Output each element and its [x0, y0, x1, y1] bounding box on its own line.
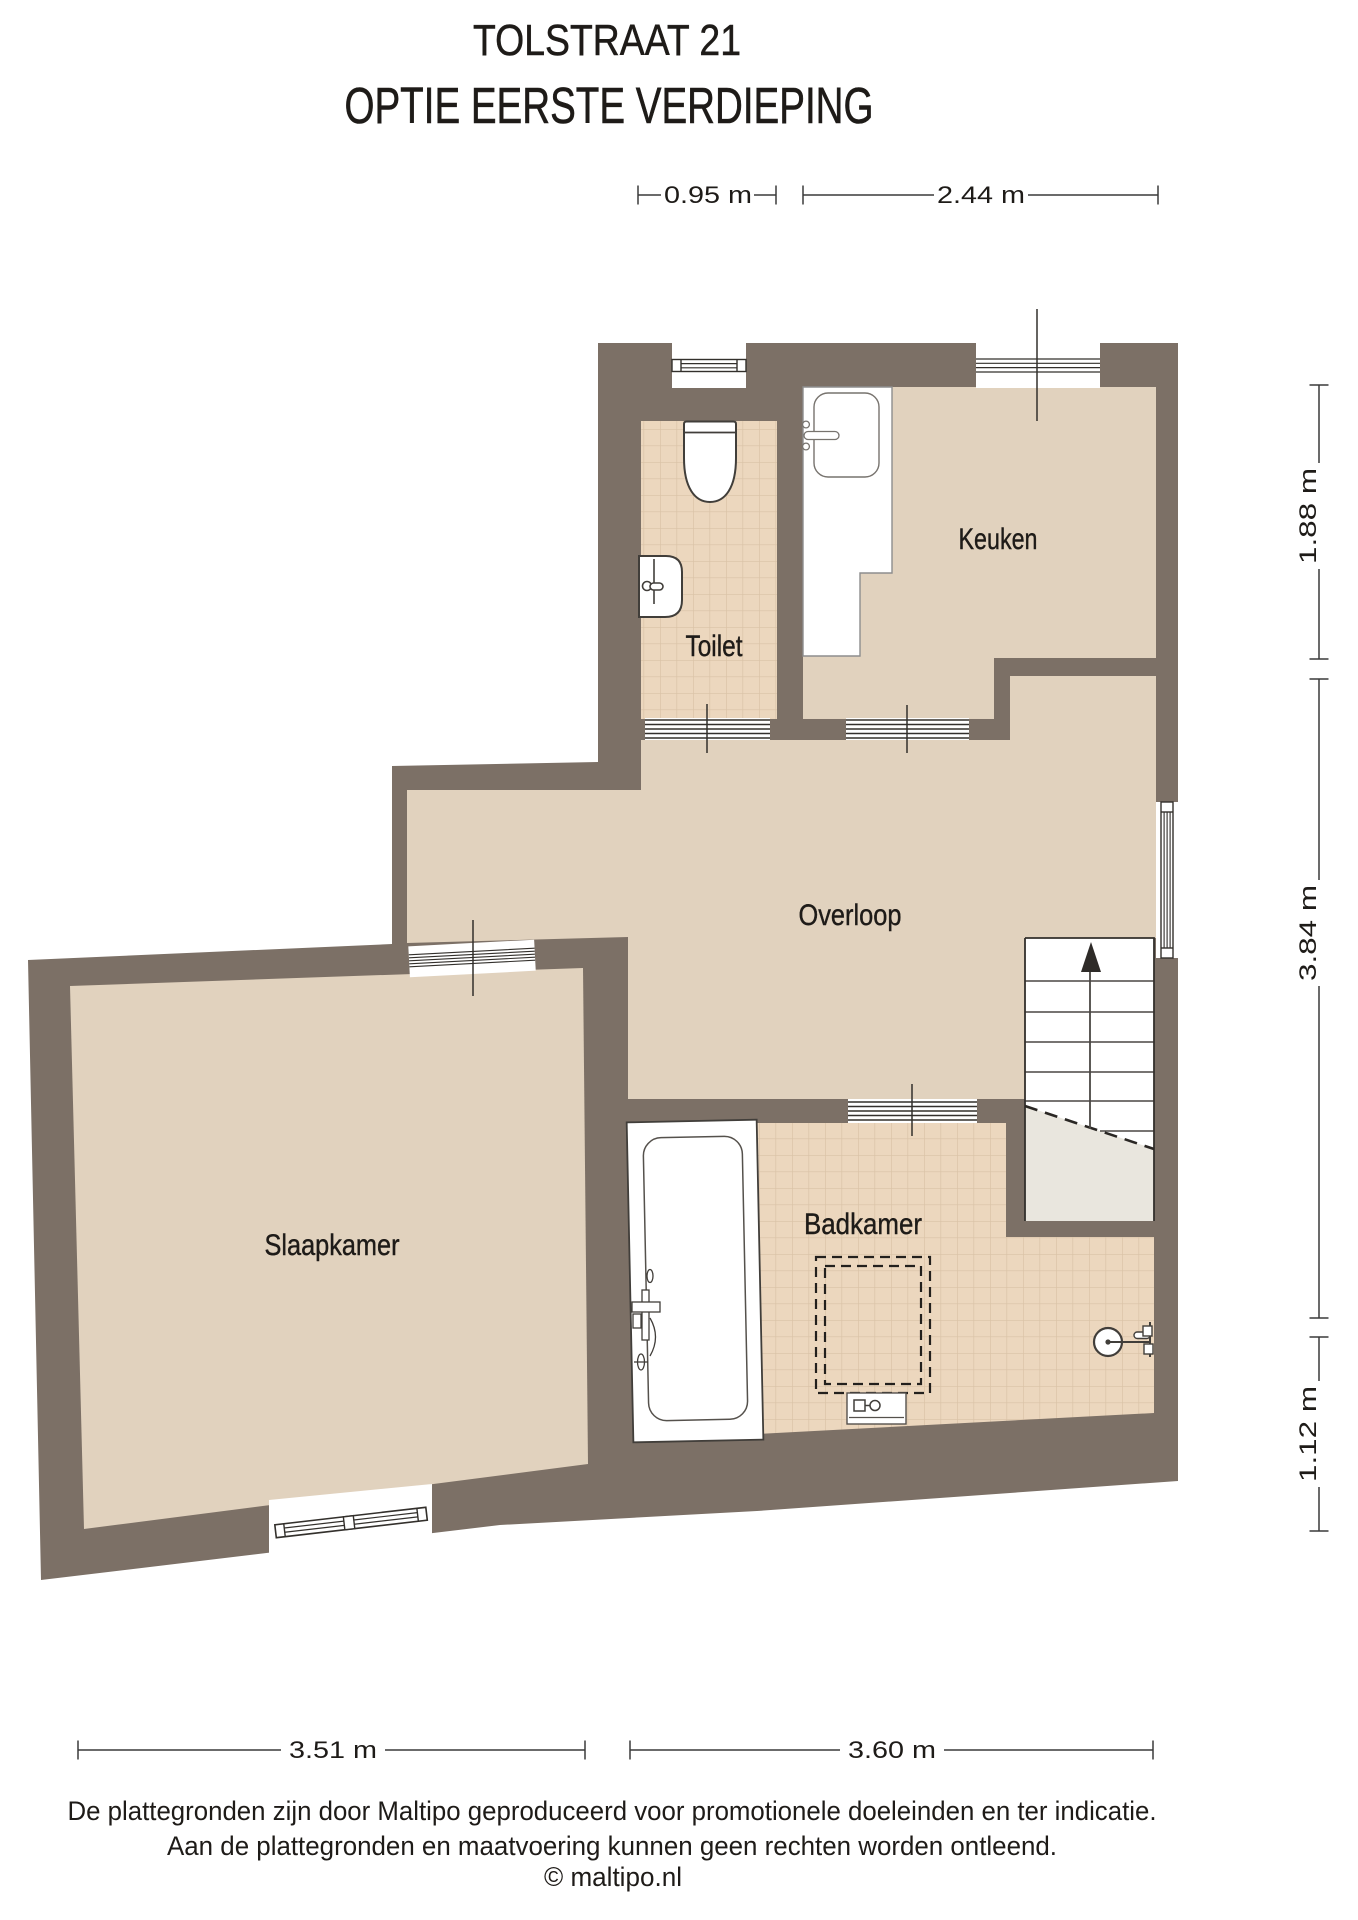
svg-text:Toilet: Toilet	[686, 630, 744, 663]
svg-text:Aan de plattegronden en maatvo: Aan de plattegronden en maatvoering kunn…	[167, 1831, 1057, 1861]
svg-text:0.95 m: 0.95 m	[664, 182, 752, 209]
svg-text:Overloop: Overloop	[799, 899, 902, 932]
svg-text:Badkamer: Badkamer	[804, 1208, 922, 1241]
svg-text:De plattegronden zijn door Mal: De plattegronden zijn door Maltipo gepro…	[68, 1796, 1157, 1826]
svg-text:OPTIE EERSTE VERDIEPING: OPTIE EERSTE VERDIEPING	[345, 77, 874, 134]
svg-text:Slaapkamer: Slaapkamer	[265, 1229, 400, 1262]
svg-text:3.51 m: 3.51 m	[289, 1737, 377, 1764]
svg-text:1.12 m: 1.12 m	[1295, 1386, 1322, 1482]
svg-text:Keuken: Keuken	[959, 523, 1038, 556]
svg-text:2.44 m: 2.44 m	[937, 182, 1025, 209]
svg-text:© maltipo.nl: © maltipo.nl	[544, 1862, 682, 1892]
svg-text:3.60 m: 3.60 m	[848, 1737, 936, 1764]
svg-text:3.84 m: 3.84 m	[1295, 885, 1322, 981]
svg-text:1.88 m: 1.88 m	[1295, 468, 1322, 564]
svg-text:TOLSTRAAT 21: TOLSTRAAT 21	[473, 16, 741, 65]
